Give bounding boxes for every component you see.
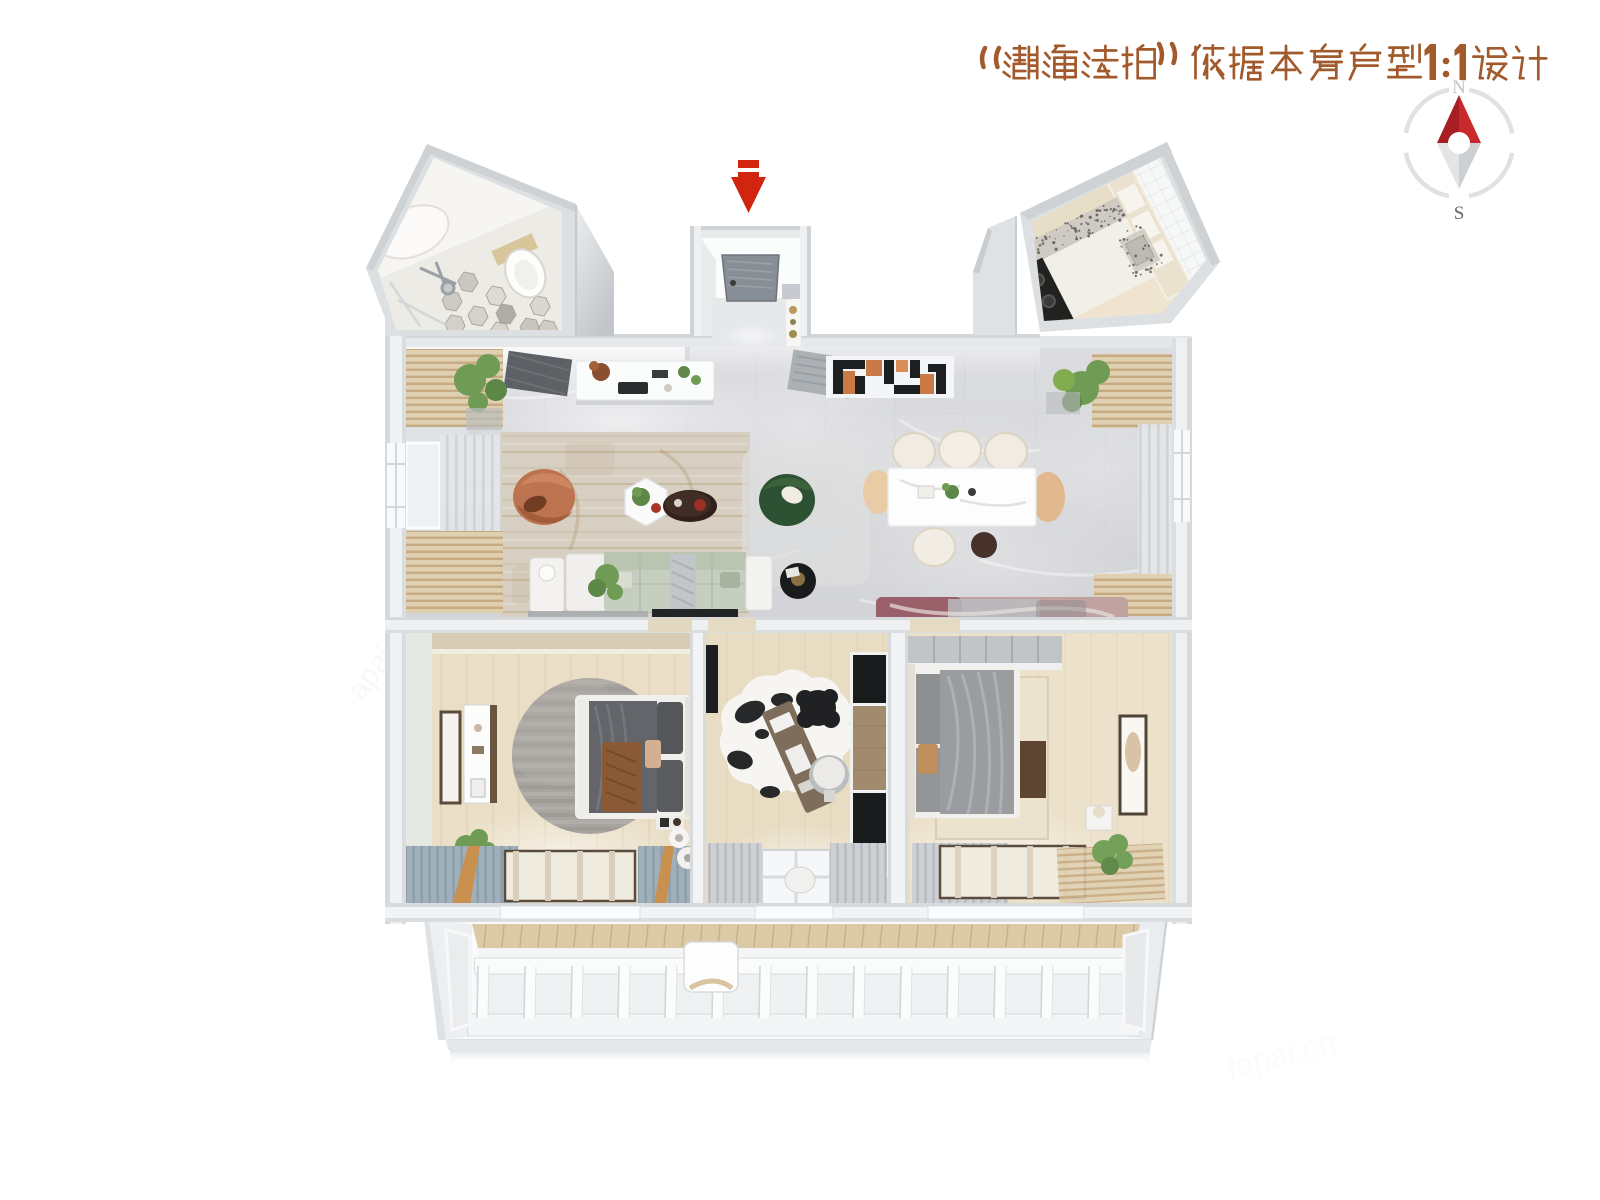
svg-text:S: S [1454, 203, 1465, 224]
svg-text:N: N [1452, 77, 1466, 98]
